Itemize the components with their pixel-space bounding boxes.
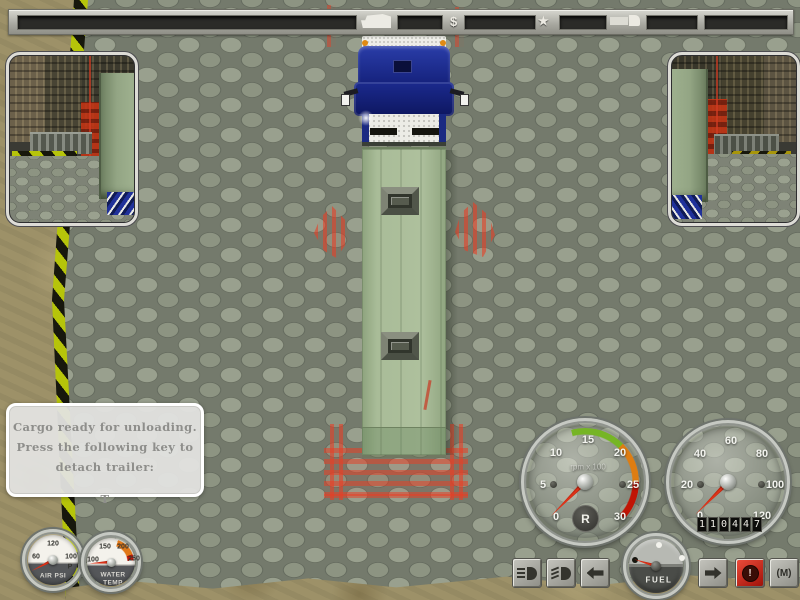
game-viewport: $ ★ bbox=[0, 0, 800, 600]
message-line-3: detach trailer: bbox=[9, 457, 201, 477]
fog-lights-icon bbox=[551, 567, 571, 580]
water-temp-hub bbox=[107, 558, 116, 567]
tach-tick-15: 15 bbox=[582, 434, 594, 446]
speed-tick-20: 20 bbox=[681, 479, 693, 491]
hud-slot-money bbox=[464, 15, 536, 30]
fuel-hub bbox=[651, 561, 661, 571]
tachometer-screw-right bbox=[619, 481, 626, 488]
tachometer-hub bbox=[577, 474, 593, 490]
water-tick-250: 250 bbox=[128, 556, 140, 563]
mirror-trailer-side bbox=[672, 69, 708, 202]
tach-tick-20: 20 bbox=[614, 447, 626, 459]
unloading-zone-edge bbox=[324, 494, 468, 498]
map-button-label: (M) bbox=[777, 568, 792, 579]
truck-deck-band-left bbox=[370, 128, 397, 135]
truck-trailer-icon-cab bbox=[629, 15, 640, 26]
marker-red-mid-right bbox=[455, 202, 495, 257]
fuel-mark-full bbox=[679, 555, 685, 561]
hud-slot-cargo bbox=[646, 15, 698, 30]
air-tick-unit: P bbox=[68, 564, 73, 571]
hud-slot-damage bbox=[397, 15, 443, 30]
truck-mirror-right-glass bbox=[460, 94, 469, 106]
truck-deck-rear-edge bbox=[362, 142, 446, 146]
hazard-warning-icon: ! bbox=[742, 565, 759, 582]
air-pressure-hub bbox=[48, 555, 58, 565]
fuel-label: FUEL bbox=[646, 576, 673, 585]
air-tick-60: 60 bbox=[32, 554, 40, 561]
mirror-trailer-side bbox=[99, 73, 134, 199]
speed-tick-60: 60 bbox=[725, 435, 737, 447]
water-temp-label-1: WATER bbox=[101, 572, 126, 579]
water-tick-150: 150 bbox=[99, 544, 111, 551]
odometer: 1 1 0 4 4 7 bbox=[697, 517, 762, 532]
speedometer-hub bbox=[720, 474, 736, 490]
message-line-2: Press the following key to bbox=[9, 437, 201, 457]
message-key-hint: T bbox=[9, 489, 201, 509]
dirt-shoulder-bottom bbox=[66, 570, 800, 600]
tachometer-screw-left bbox=[550, 481, 557, 488]
mirror-truck-chassis bbox=[672, 195, 702, 218]
message-box: Cargo ready for unloading. Press the fol… bbox=[6, 403, 204, 497]
air-tick-120: 120 bbox=[47, 541, 59, 548]
dollar-symbol: $ bbox=[450, 14, 457, 29]
headlight-flare bbox=[358, 110, 374, 126]
tachometer-unit-label: rpm x 100 bbox=[570, 463, 606, 472]
trailer-roof-vent-front bbox=[381, 187, 419, 215]
hud-slot-route bbox=[17, 15, 357, 30]
message-line-1: Cargo ready for unloading. bbox=[9, 417, 201, 437]
odometer-digit: 0 bbox=[719, 517, 729, 532]
tach-tick-5: 5 bbox=[540, 479, 546, 491]
speedometer-screw-right bbox=[758, 481, 765, 488]
truck-deck-band-right bbox=[412, 128, 439, 135]
speed-tick-100: 100 bbox=[766, 479, 784, 491]
trailer-roof-vent-rear bbox=[381, 332, 419, 360]
star-symbol: ★ bbox=[538, 14, 549, 29]
speed-tick-80: 80 bbox=[756, 448, 768, 460]
fog-lights-button[interactable] bbox=[546, 558, 576, 588]
map-button[interactable]: (M) bbox=[769, 558, 799, 588]
truck-deck bbox=[362, 114, 446, 146]
speed-tick-40: 40 bbox=[694, 448, 706, 460]
turn-right-button[interactable] bbox=[698, 558, 728, 588]
truck-trailer-icon-box bbox=[610, 17, 628, 25]
fuel-mark-half bbox=[656, 542, 662, 548]
right-arrow-icon bbox=[705, 567, 722, 579]
hud-slot-time bbox=[704, 15, 788, 30]
water-tick-200: 200 bbox=[117, 544, 129, 551]
odometer-digit: 4 bbox=[741, 517, 751, 532]
hazard-symbol: ! bbox=[748, 568, 751, 579]
top-hud-bar: $ ★ bbox=[8, 9, 794, 35]
headlights-icon bbox=[517, 567, 537, 580]
marker-red-mid-left bbox=[314, 206, 350, 258]
truck-cab bbox=[340, 32, 468, 148]
truck-roof-vent bbox=[393, 60, 412, 73]
air-tick-100: 100 bbox=[65, 554, 77, 561]
trailer-rear-section bbox=[362, 427, 446, 458]
odometer-digit: 1 bbox=[697, 517, 707, 532]
hazard-button[interactable]: ! bbox=[735, 558, 765, 588]
speedometer-screw-left bbox=[697, 481, 704, 488]
tach-tick-25: 25 bbox=[627, 479, 639, 491]
tach-tick-0: 0 bbox=[553, 511, 559, 523]
trailer-shadow bbox=[446, 150, 458, 455]
hud-slot-rating bbox=[559, 15, 607, 30]
truck-mirror-left-glass bbox=[341, 94, 350, 106]
gear-indicator: R bbox=[572, 505, 599, 532]
right-mirror bbox=[668, 52, 800, 226]
tach-tick-30: 30 bbox=[614, 511, 626, 523]
truck-cab-icon bbox=[361, 14, 391, 28]
gear-indicator-value: R bbox=[581, 512, 590, 526]
turn-left-button[interactable] bbox=[580, 558, 610, 588]
tach-tick-10: 10 bbox=[550, 447, 562, 459]
left-mirror-scene bbox=[10, 56, 134, 222]
water-temp-label-2: TEMP bbox=[103, 580, 123, 587]
mirror-truck-chassis bbox=[107, 192, 134, 215]
odometer-digit: 1 bbox=[708, 517, 718, 532]
air-pressure-label: AIR PSI bbox=[40, 573, 66, 580]
headlights-button[interactable] bbox=[512, 558, 542, 588]
left-mirror bbox=[6, 52, 138, 226]
odometer-digit: 7 bbox=[752, 517, 762, 532]
odometer-digit: 4 bbox=[730, 517, 740, 532]
right-mirror-scene bbox=[672, 56, 796, 222]
left-arrow-icon bbox=[587, 567, 604, 579]
truck-trailer-icon bbox=[610, 15, 642, 28]
